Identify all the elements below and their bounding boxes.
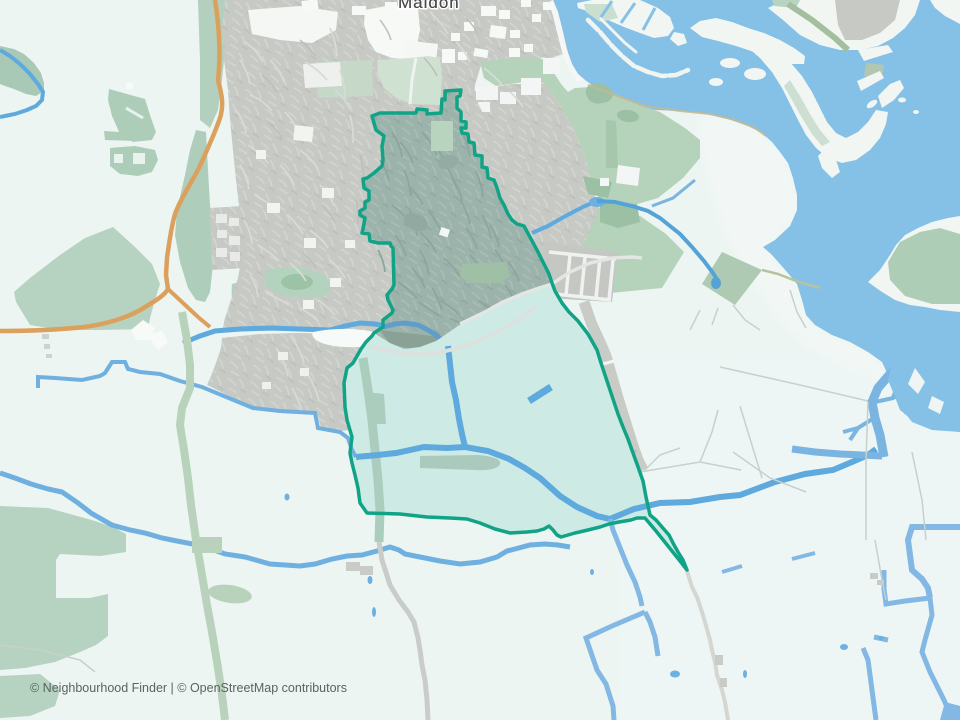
svg-text:Maldon: Maldon	[398, 0, 460, 12]
svg-text:© Neighbourhood Finder | © Ope: © Neighbourhood Finder | © OpenStreetMap…	[30, 681, 347, 695]
